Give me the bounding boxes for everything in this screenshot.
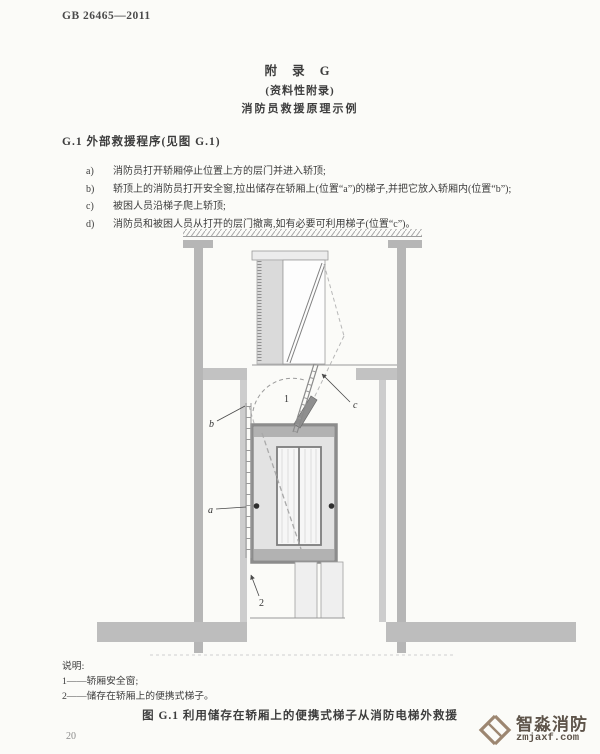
watermark: 智淼消防 zmjaxf.com — [478, 713, 588, 747]
label-position-b: b — [209, 419, 214, 430]
label-position-c: c — [353, 400, 358, 411]
watermark-domain: zmjaxf.com — [516, 733, 588, 744]
item-marker: a) — [86, 163, 113, 181]
legend-item-2: 2——储存在轿厢上的便携式梯子。 — [62, 689, 214, 704]
watermark-brand: 智淼消防 — [516, 716, 588, 734]
guide-shoe-right — [329, 503, 335, 509]
page-number: 20 — [66, 731, 76, 742]
figure-legend: 说明: 1——轿厢安全窗; 2——储存在轿厢上的便携式梯子。 — [62, 659, 214, 704]
item-marker: c) — [86, 198, 113, 216]
upper-landing-door — [252, 251, 397, 365]
procedure-item-c: c) 被困人员沿梯子爬上轿顶; — [86, 198, 586, 216]
ceiling-hatch — [183, 229, 422, 237]
item-text: 被困人员沿梯子爬上轿顶; — [113, 198, 226, 216]
appendix-title: 附 录 G — [0, 60, 600, 79]
figure-g1-diagram: b a c 1 2 — [90, 228, 590, 658]
procedure-item-b: b) 轿顶上的消防员打开安全窗,拉出储存在轿厢上(位置“a”)的梯子,并把它放入… — [86, 181, 586, 199]
legend-title: 说明: — [62, 659, 214, 674]
elevator-shaft-section-drawing: b a c 1 2 — [90, 228, 590, 658]
standard-number: GB 26465—2011 — [62, 10, 151, 22]
legend-item-1: 1——轿厢安全窗; — [62, 674, 214, 689]
label-safety-window: 1 — [284, 394, 289, 405]
label-stored-ladder: 2 — [259, 598, 264, 609]
watermark-text: 智淼消防 zmjaxf.com — [516, 716, 588, 745]
label-position-a: a — [208, 505, 213, 516]
item-text: 消防员打开轿厢停止位置上方的层门并进入轿顶; — [113, 163, 326, 181]
guide-shoe-left — [254, 503, 260, 509]
item-text: 轿顶上的消防员打开安全窗,拉出储存在轿厢上(位置“a”)的梯子,并把它放入轿厢内… — [113, 181, 511, 199]
watermark-logo-icon — [478, 713, 512, 747]
appendix-subtitle: (资料性附录) — [0, 82, 600, 98]
appendix-subject: 消防员救援原理示例 — [0, 100, 600, 116]
procedure-list: a) 消防员打开轿厢停止位置上方的层门并进入轿顶; b) 轿顶上的消防员打开安全… — [86, 163, 586, 233]
item-marker: b) — [86, 181, 113, 199]
lower-landing-door — [250, 562, 345, 618]
section-heading: G.1 外部救援程序(见图 G.1) — [62, 133, 221, 149]
elevator-car — [252, 425, 336, 562]
procedure-item-a: a) 消防员打开轿厢停止位置上方的层门并进入轿顶; — [86, 163, 586, 181]
document-page: GB 26465—2011 附 录 G (资料性附录) 消防员救援原理示例 G.… — [0, 0, 600, 754]
